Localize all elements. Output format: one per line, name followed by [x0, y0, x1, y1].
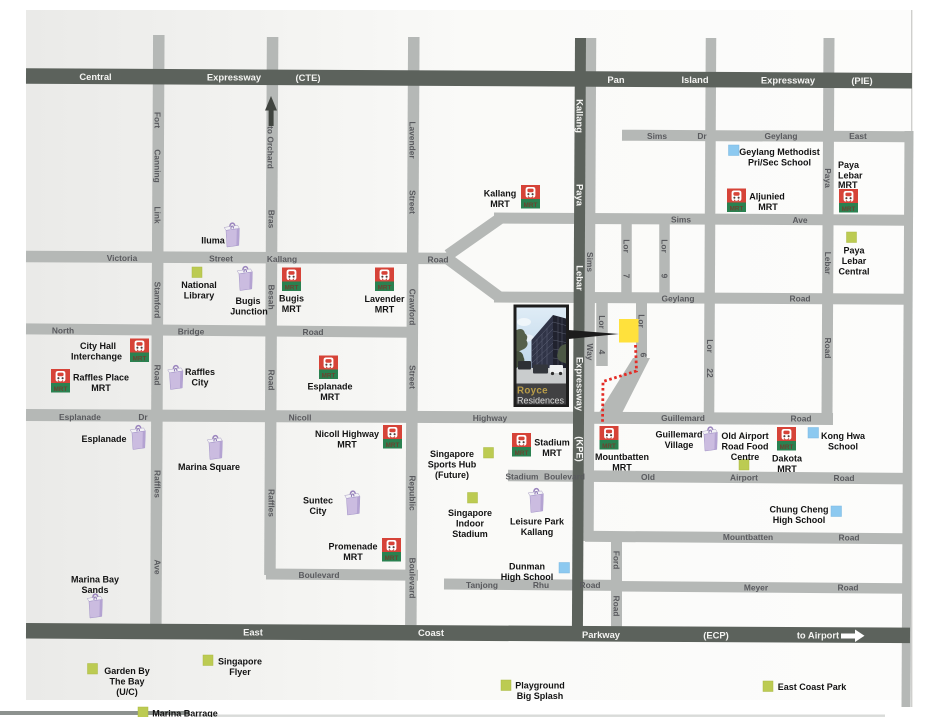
svg-text:Old: Old [641, 472, 655, 482]
svg-text:Parkway: Parkway [582, 629, 621, 640]
svg-text:East: East [849, 131, 867, 141]
svg-text:Sims: Sims [585, 252, 595, 272]
svg-text:Indoor: Indoor [456, 519, 484, 529]
svg-text:Road: Road [612, 596, 622, 617]
svg-text:Stadium: Stadium [505, 472, 538, 482]
svg-text:Kallang: Kallang [575, 99, 586, 133]
svg-text:Dr: Dr [138, 412, 148, 422]
svg-text:Big Splash: Big Splash [517, 691, 564, 701]
svg-text:Coast: Coast [418, 627, 444, 638]
svg-text:MRT: MRT [758, 202, 778, 212]
svg-text:Guillemard: Guillemard [655, 430, 702, 440]
svg-text:Lor: Lor [597, 315, 607, 329]
svg-text:Pri/Sec School: Pri/Sec School [748, 158, 811, 168]
svg-text:Bugis: Bugis [235, 296, 260, 306]
svg-text:School: School [828, 442, 858, 452]
svg-text:The Bay: The Bay [109, 677, 144, 687]
svg-text:Dr: Dr [697, 131, 707, 141]
svg-text:Paya: Paya [823, 168, 833, 188]
svg-text:Lavender: Lavender [364, 294, 405, 304]
svg-text:MRT: MRT [282, 304, 302, 314]
svg-text:(Future): (Future) [435, 470, 469, 480]
svg-text:Airport: Airport [730, 473, 758, 483]
svg-text:Lavender: Lavender [408, 121, 418, 159]
svg-text:Residences: Residences [517, 396, 565, 406]
svg-text:(CTE): (CTE) [296, 72, 321, 83]
svg-text:MRT: MRT [320, 392, 340, 402]
svg-text:Singapore: Singapore [218, 657, 262, 667]
svg-text:Sims: Sims [671, 215, 691, 225]
svg-text:Street: Street [408, 365, 418, 389]
svg-text:Junction: Junction [230, 307, 268, 317]
svg-text:Road: Road [839, 533, 860, 543]
svg-text:MRT: MRT [838, 180, 858, 190]
svg-text:Esplanade: Esplanade [81, 434, 126, 444]
svg-text:Lebar: Lebar [838, 171, 863, 181]
svg-text:Bridge: Bridge [178, 327, 205, 337]
svg-text:Marina Bay: Marina Bay [71, 575, 119, 585]
svg-text:Esplanade: Esplanade [307, 382, 352, 392]
svg-text:6: 6 [639, 353, 649, 358]
svg-text:Nicoll: Nicoll [289, 413, 312, 423]
svg-text:Meyer: Meyer [744, 583, 769, 593]
svg-text:City: City [191, 378, 208, 388]
svg-text:Marina Square: Marina Square [178, 462, 240, 472]
svg-text:Road Food: Road Food [722, 442, 769, 452]
svg-text:Lor: Lor [705, 339, 715, 353]
svg-text:City: City [309, 506, 326, 516]
svg-text:Victoria: Victoria [107, 253, 138, 263]
svg-text:Playground: Playground [515, 681, 565, 691]
svg-text:Geylang: Geylang [764, 131, 797, 141]
svg-text:High School: High School [501, 572, 554, 582]
svg-text:Boulevard: Boulevard [408, 558, 418, 599]
svg-text:MRT: MRT [375, 305, 395, 315]
svg-text:Tanjong: Tanjong [466, 580, 498, 590]
svg-text:to Orchard: to Orchard [265, 126, 275, 169]
svg-text:High School: High School [773, 515, 826, 525]
svg-text:Road: Road [267, 370, 277, 391]
svg-text:Stadium: Stadium [452, 529, 488, 539]
svg-text:Street: Street [209, 254, 233, 264]
svg-text:Mountbatten: Mountbatten [595, 452, 649, 462]
svg-text:Central: Central [838, 267, 869, 277]
svg-text:MRT: MRT [343, 552, 363, 562]
svg-text:Mountbatten: Mountbatten [723, 532, 773, 542]
svg-text:Kong Hwa: Kong Hwa [821, 431, 866, 441]
svg-text:Nicoll Highway: Nicoll Highway [315, 429, 379, 439]
svg-text:Link: Link [153, 206, 163, 224]
svg-text:Kallang: Kallang [521, 527, 554, 537]
svg-text:East Coast Park: East Coast Park [778, 682, 848, 692]
svg-text:Besah: Besah [267, 284, 277, 309]
svg-text:7: 7 [622, 274, 632, 279]
svg-text:Iluma: Iluma [201, 236, 226, 246]
svg-text:Road: Road [303, 327, 324, 337]
svg-text:to Airport: to Airport [797, 630, 839, 641]
svg-text:(KPE): (KPE) [575, 436, 586, 462]
svg-text:Dunman: Dunman [509, 562, 545, 572]
svg-text:Promenade: Promenade [328, 542, 377, 552]
svg-text:Canning: Canning [153, 149, 163, 183]
svg-text:Guillemard: Guillemard [661, 413, 705, 423]
svg-text:Marina Barrage: Marina Barrage [152, 709, 218, 717]
svg-text:(ECP): (ECP) [703, 630, 729, 641]
svg-text:Aljunied: Aljunied [749, 192, 785, 202]
svg-text:Lebar: Lebar [823, 252, 833, 276]
svg-text:Stadium: Stadium [534, 438, 570, 448]
svg-text:Lebar: Lebar [575, 265, 586, 291]
svg-text:Lor: Lor [622, 239, 632, 253]
svg-text:MRT: MRT [612, 463, 632, 473]
svg-text:Lor: Lor [660, 239, 670, 253]
svg-text:Ford: Ford [612, 551, 622, 570]
svg-text:Lebar: Lebar [842, 256, 867, 266]
svg-text:(U/C): (U/C) [116, 687, 138, 697]
svg-text:MRT: MRT [777, 464, 797, 474]
svg-text:Leisure Park: Leisure Park [510, 517, 565, 527]
svg-text:Road: Road [153, 365, 163, 386]
svg-text:Fort: Fort [153, 112, 163, 128]
svg-text:Boulevard: Boulevard [544, 472, 585, 482]
svg-text:Kallang: Kallang [484, 189, 517, 199]
svg-text:Expressway: Expressway [761, 75, 816, 86]
svg-text:Street: Street [408, 190, 418, 214]
svg-text:Road: Road [790, 294, 811, 304]
svg-text:City Hall: City Hall [80, 341, 116, 351]
svg-text:Sims: Sims [647, 131, 667, 141]
svg-text:Paya: Paya [843, 246, 865, 256]
svg-text:Singapore: Singapore [448, 508, 492, 518]
svg-text:Raffles Place: Raffles Place [73, 373, 129, 383]
svg-text:Stamford: Stamford [153, 282, 163, 319]
svg-text:MRT: MRT [490, 199, 510, 209]
svg-text:Paya: Paya [838, 160, 860, 170]
svg-text:Chung Cheng: Chung Cheng [770, 505, 829, 515]
svg-text:Boulevard: Boulevard [299, 570, 340, 580]
svg-text:Dakota: Dakota [772, 454, 803, 464]
svg-text:Road: Road [838, 583, 859, 593]
svg-text:Central: Central [79, 71, 111, 82]
svg-text:Road: Road [823, 338, 833, 359]
svg-text:Expressway: Expressway [575, 357, 586, 412]
svg-text:Interchange: Interchange [71, 352, 122, 362]
svg-text:National: National [181, 280, 217, 290]
svg-text:Library: Library [184, 291, 215, 301]
svg-text:Bras: Bras [267, 210, 277, 229]
svg-text:Old Airport: Old Airport [721, 431, 768, 441]
svg-text:Suntec: Suntec [303, 496, 333, 506]
svg-text:Geylang: Geylang [661, 294, 694, 304]
svg-text:(PIE): (PIE) [851, 75, 872, 86]
svg-text:Ave: Ave [792, 215, 807, 225]
svg-text:Republic: Republic [408, 475, 418, 511]
svg-text:Village: Village [665, 440, 694, 450]
svg-text:Raffles: Raffles [185, 367, 215, 377]
svg-text:Road: Road [834, 473, 855, 483]
svg-text:Pan: Pan [607, 74, 624, 85]
svg-text:Esplanade: Esplanade [59, 412, 101, 422]
svg-text:MRT: MRT [91, 383, 111, 393]
svg-text:North: North [52, 326, 74, 336]
svg-text:Singapore: Singapore [430, 449, 474, 459]
svg-text:East: East [243, 627, 263, 638]
svg-text:Sands: Sands [81, 585, 108, 595]
svg-text:Crawford: Crawford [408, 289, 418, 326]
svg-text:Island: Island [681, 74, 708, 85]
svg-text:Paya: Paya [575, 184, 586, 207]
svg-text:MRT: MRT [337, 440, 357, 450]
svg-text:Raffles: Raffles [153, 470, 163, 498]
svg-text:Expressway: Expressway [207, 72, 262, 83]
svg-text:Road: Road [580, 580, 601, 590]
svg-text:Road: Road [791, 414, 812, 424]
svg-text:Garden By: Garden By [104, 666, 150, 676]
svg-text:Road: Road [428, 255, 449, 265]
svg-text:Sports Hub: Sports Hub [428, 460, 477, 470]
svg-text:Geylang Methodist: Geylang Methodist [739, 147, 820, 157]
svg-text:Centre: Centre [731, 452, 760, 462]
svg-text:Way: Way [585, 344, 595, 361]
svg-text:Highway: Highway [473, 413, 508, 423]
svg-text:Flyer: Flyer [229, 667, 251, 677]
svg-text:Bugis: Bugis [279, 294, 304, 304]
svg-text:9: 9 [660, 274, 670, 279]
svg-text:22: 22 [705, 368, 715, 378]
svg-text:Ave: Ave [153, 559, 163, 574]
svg-text:Raffles: Raffles [267, 489, 277, 517]
svg-text:MRT: MRT [542, 448, 562, 458]
svg-text:Kallang: Kallang [267, 254, 297, 264]
svg-text:4: 4 [597, 350, 607, 355]
